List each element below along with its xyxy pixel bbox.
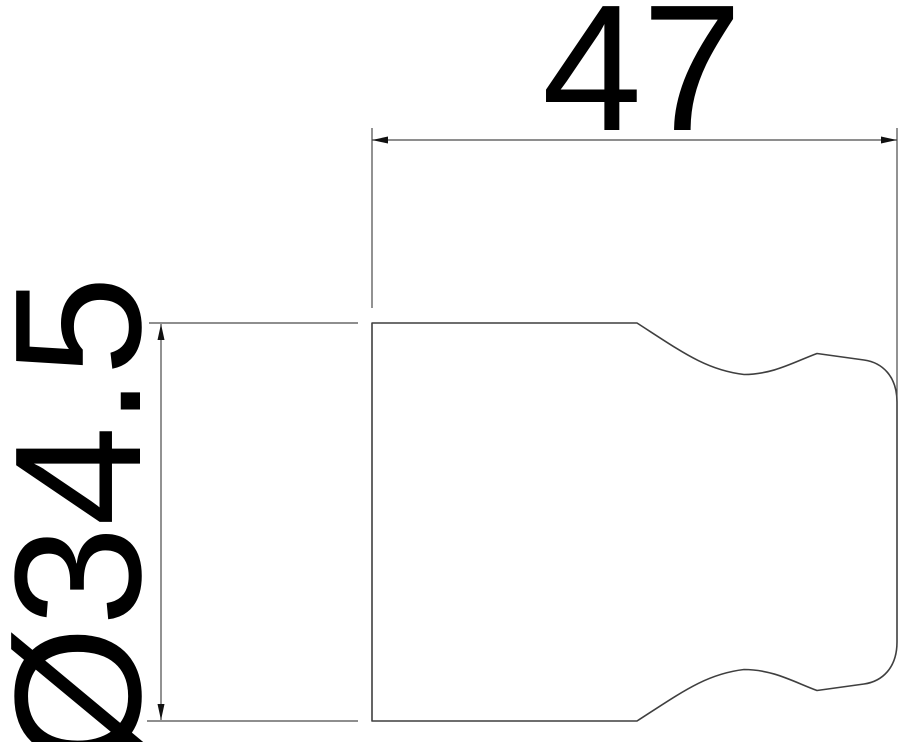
dimension-width-value: 47: [542, 0, 742, 169]
dim-arrow-right-icon: [881, 137, 897, 144]
part-outline: [372, 323, 897, 721]
dimension-diameter-value: Ø34.5: [0, 276, 179, 742]
dimension-diameter: Ø34.5: [0, 276, 358, 742]
dim-arrow-left-icon: [372, 137, 388, 144]
dimension-width: 47: [372, 0, 897, 402]
technical-drawing: 47 Ø34.5: [0, 0, 900, 742]
part-outline-group: [372, 323, 897, 721]
drawing-canvas: 47 Ø34.5: [0, 0, 900, 742]
